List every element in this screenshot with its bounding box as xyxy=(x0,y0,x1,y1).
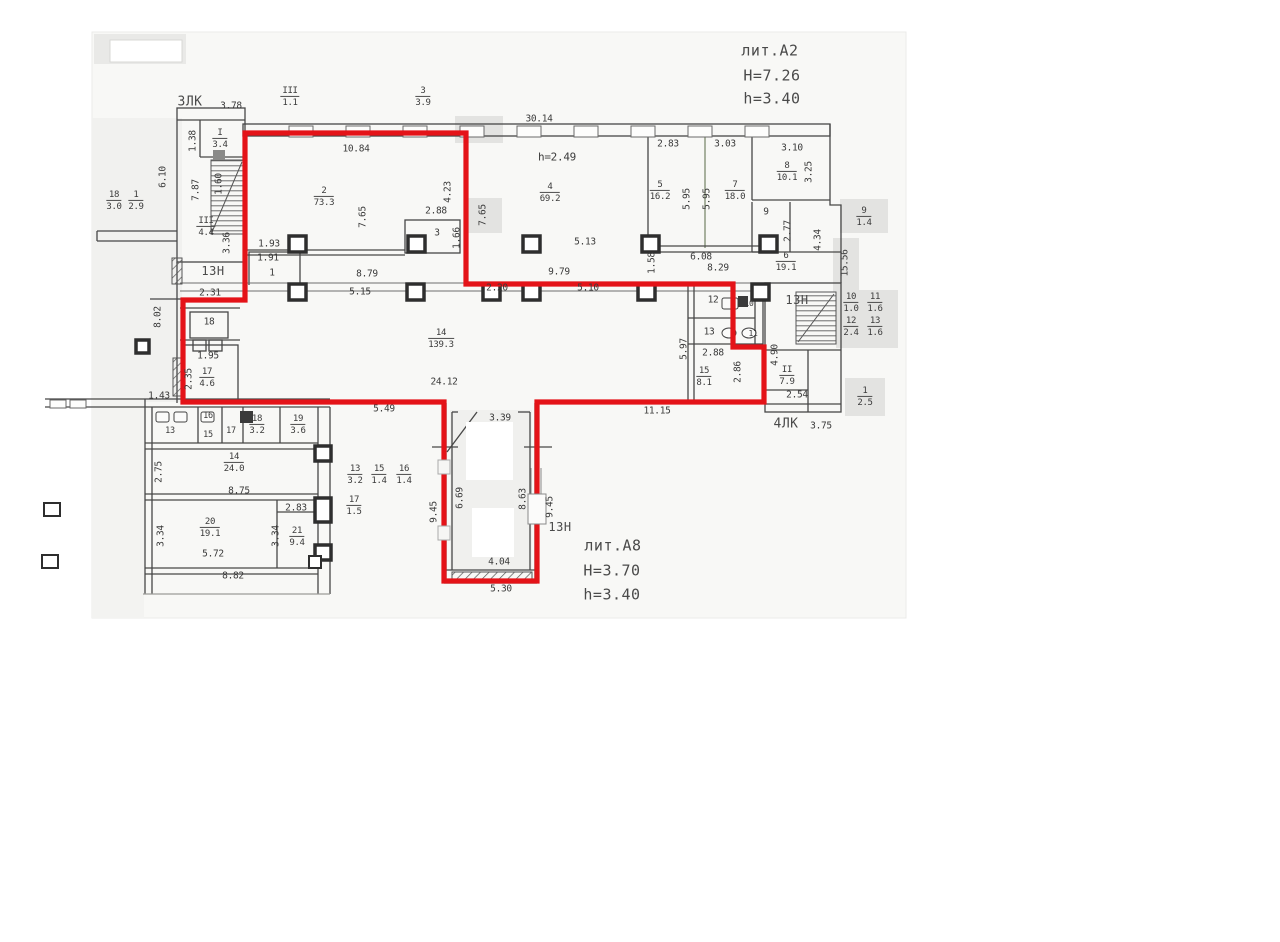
stairwell-4lk-stairs xyxy=(796,292,836,344)
floor-plan-svg xyxy=(0,0,1280,942)
stairwell-3lk-stairs xyxy=(211,150,243,234)
floor-plan-scan: лит.А2Н=7.26h=3.40лит.А8Н=3.70h=3.403ЛК3… xyxy=(0,0,1280,942)
